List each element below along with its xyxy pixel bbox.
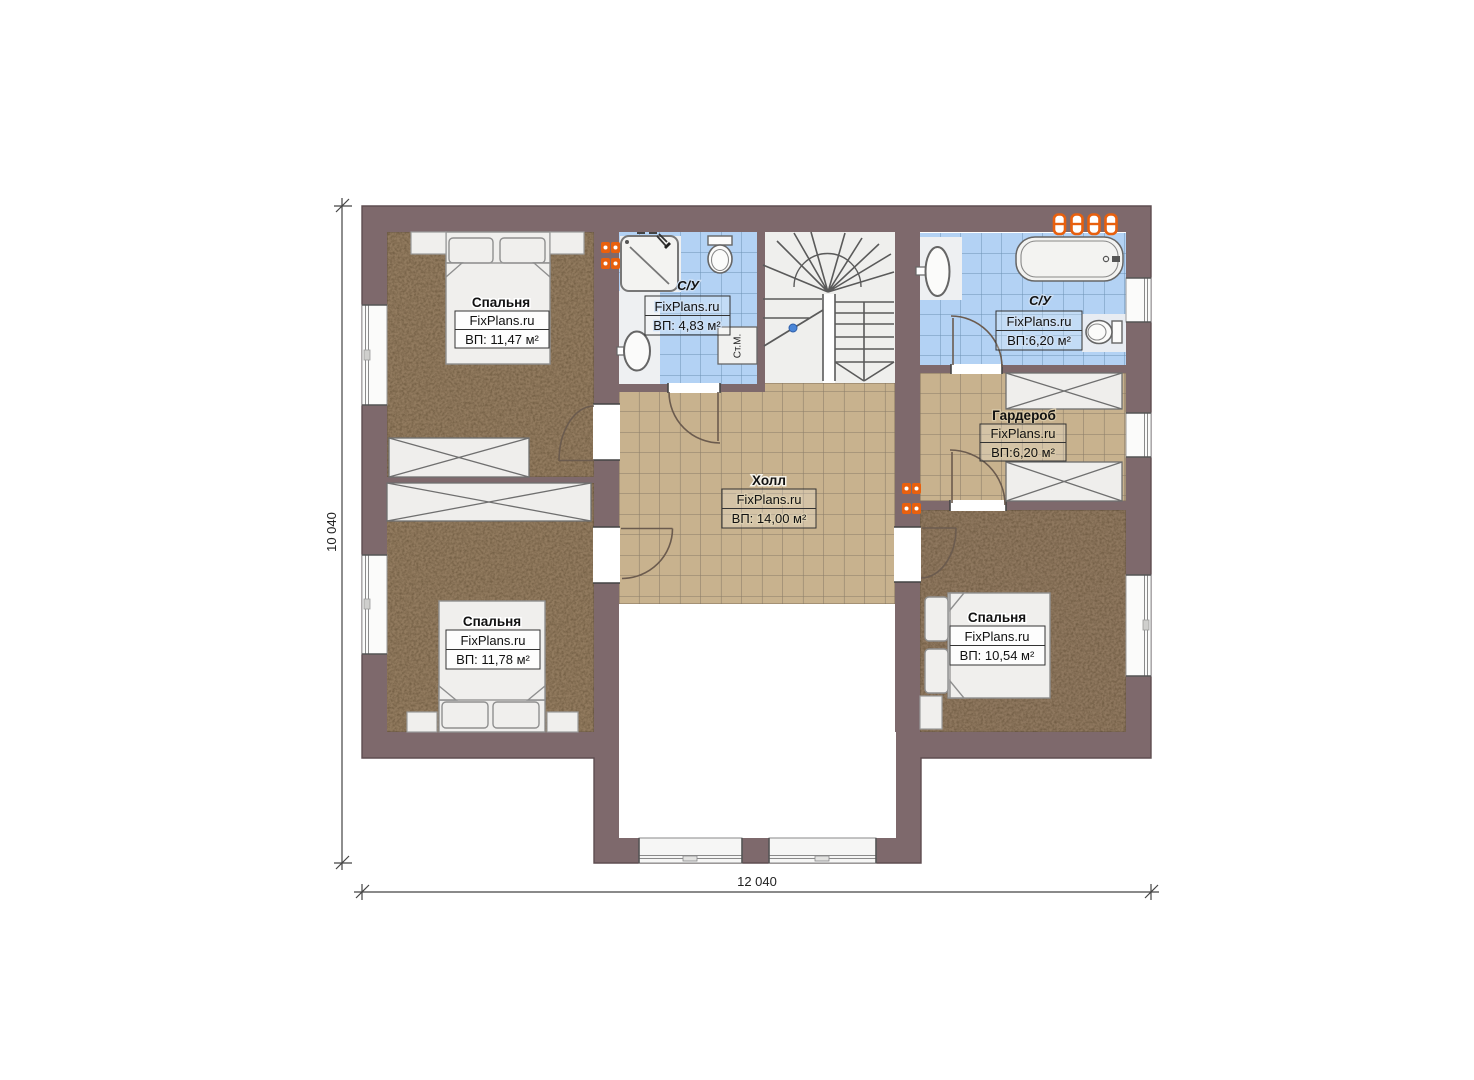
svg-text:ВП:6,20 м²: ВП:6,20 м² bbox=[991, 445, 1055, 460]
svg-text:Ст.М.: Ст.М. bbox=[733, 334, 744, 359]
svg-text:Спальня: Спальня bbox=[463, 614, 521, 629]
svg-text:FixPlans.ru: FixPlans.ru bbox=[964, 629, 1029, 644]
svg-text:ВП: 14,00 м²: ВП: 14,00 м² bbox=[732, 511, 807, 526]
svg-text:FixPlans.ru: FixPlans.ru bbox=[990, 426, 1055, 441]
svg-text:ВП:6,20 м²: ВП:6,20 м² bbox=[1007, 333, 1071, 348]
svg-text:FixPlans.ru: FixPlans.ru bbox=[1006, 314, 1071, 329]
svg-text:FixPlans.ru: FixPlans.ru bbox=[469, 313, 534, 328]
svg-text:FixPlans.ru: FixPlans.ru bbox=[654, 299, 719, 314]
svg-text:Холл: Холл bbox=[752, 473, 786, 488]
svg-text:FixPlans.ru: FixPlans.ru bbox=[736, 492, 801, 507]
svg-text:ВП: 10,54 м²: ВП: 10,54 м² bbox=[960, 648, 1035, 663]
svg-text:Спальня: Спальня bbox=[968, 610, 1026, 625]
svg-text:С/У: С/У bbox=[1029, 293, 1052, 308]
svg-text:12 040: 12 040 bbox=[737, 874, 777, 889]
svg-text:ВП: 4,83 м²: ВП: 4,83 м² bbox=[653, 318, 721, 333]
svg-text:ВП: 11,78 м²: ВП: 11,78 м² bbox=[456, 652, 530, 667]
svg-text:Гардероб: Гардероб bbox=[992, 408, 1056, 423]
svg-text:FixPlans.ru: FixPlans.ru bbox=[460, 633, 525, 648]
svg-text:Спальня: Спальня bbox=[472, 295, 530, 310]
svg-text:С/У: С/У bbox=[677, 278, 700, 293]
svg-text:ВП: 11,47 м²: ВП: 11,47 м² bbox=[465, 332, 539, 347]
svg-text:10 040: 10 040 bbox=[324, 512, 339, 552]
